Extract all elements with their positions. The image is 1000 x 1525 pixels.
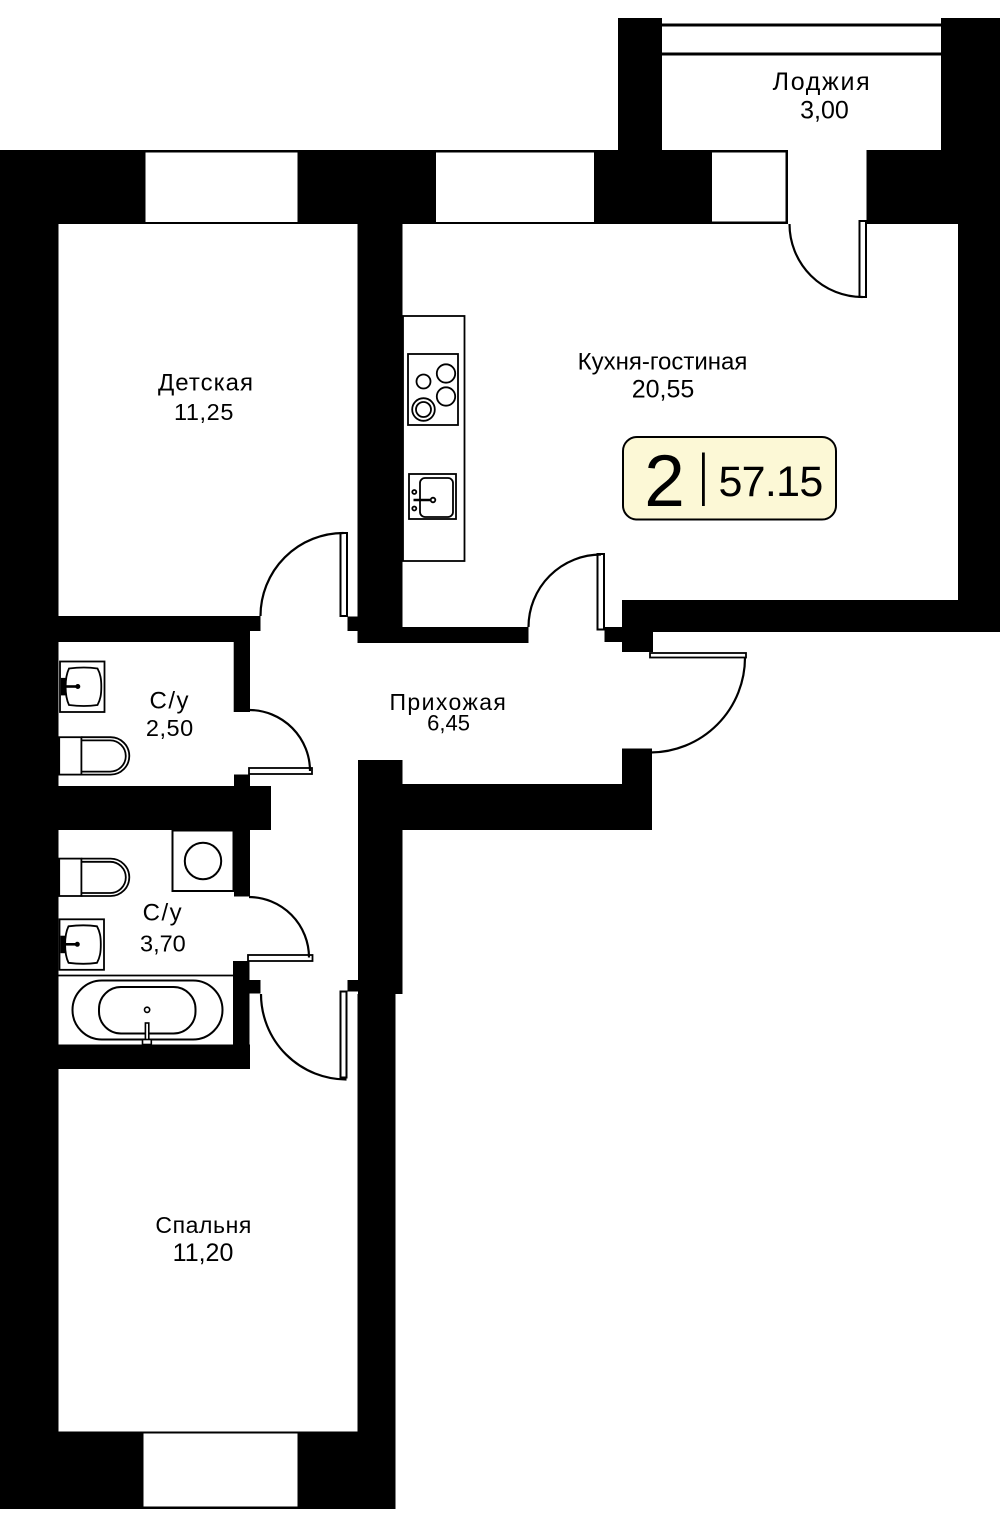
- svg-text:Лоджия: Лоджия: [773, 68, 872, 96]
- svg-text:Детская: Детская: [158, 370, 254, 397]
- svg-text:Кухня-гостиная: Кухня-гостиная: [578, 349, 748, 376]
- svg-text:6,45: 6,45: [427, 711, 470, 736]
- svg-text:11,25: 11,25: [174, 399, 234, 425]
- svg-text:57.15: 57.15: [718, 458, 822, 506]
- svg-text:С/у: С/у: [150, 688, 191, 715]
- svg-text:3,70: 3,70: [140, 931, 186, 957]
- svg-text:20,55: 20,55: [632, 376, 695, 404]
- svg-text:С/у: С/у: [143, 900, 184, 927]
- svg-text:2,50: 2,50: [146, 715, 194, 741]
- svg-text:Спальня: Спальня: [155, 1212, 252, 1238]
- svg-text:11,20: 11,20: [173, 1239, 234, 1267]
- svg-text:3,00: 3,00: [800, 97, 849, 125]
- svg-text:2: 2: [644, 441, 685, 522]
